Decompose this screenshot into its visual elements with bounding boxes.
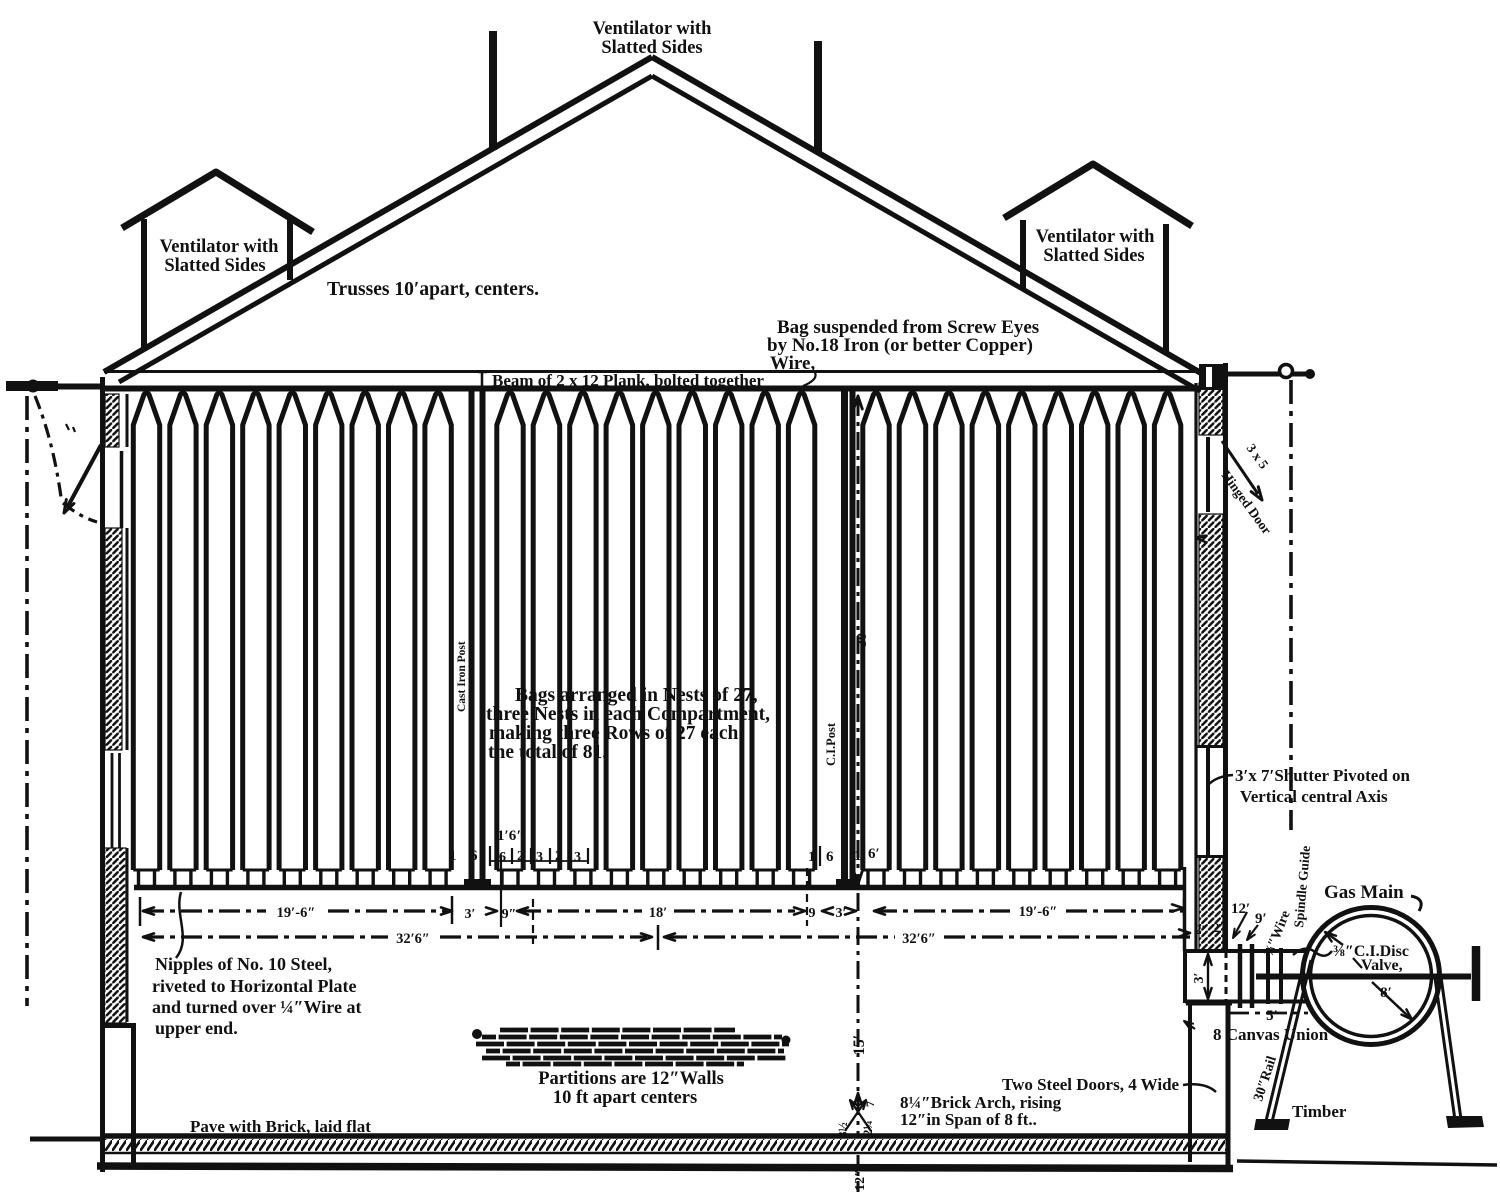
svg-text:Timber: Timber — [1292, 1102, 1347, 1121]
svg-text:Bags arranged in Nests of 27,: Bags arranged in Nests of 27, — [515, 685, 758, 706]
svg-text:32′6″: 32′6″ — [902, 931, 936, 947]
svg-text:Slatted Sides: Slatted Sides — [1043, 246, 1144, 266]
svg-text:Beam of 2 x 12 Plank, bolted t: Beam of 2 x 12 Plank, bolted together — [492, 371, 764, 390]
svg-text:Wire,: Wire, — [770, 353, 815, 374]
svg-text:three Nests in each Compartmen: three Nests in each Compartment, — [486, 704, 770, 725]
svg-text:1: 1 — [808, 849, 816, 865]
svg-text:and turned over ¼″Wire at: and turned over ¼″Wire at — [152, 997, 361, 1017]
svg-text:18′: 18′ — [649, 905, 668, 921]
svg-text:3: 3 — [536, 850, 543, 865]
svg-text:6: 6 — [826, 849, 834, 865]
svg-text:Two Steel Doors, 4 Wide: Two Steel Doors, 4 Wide — [1002, 1075, 1180, 1094]
svg-text:making three Rows of 27 each: making three Rows of 27 each — [489, 723, 738, 744]
svg-text:3′: 3′ — [465, 907, 476, 922]
svg-text:3: 3 — [574, 850, 581, 865]
svg-text:Nipples of No. 10 Steel,: Nipples of No. 10 Steel, — [155, 954, 332, 974]
svg-text:Slatted Sides: Slatted Sides — [601, 38, 702, 58]
svg-text:Ventilator with: Ventilator with — [593, 19, 712, 39]
svg-text:10 ft apart centers: 10 ft apart centers — [553, 1088, 697, 1108]
svg-text:19′-6″: 19′-6″ — [1019, 904, 1058, 920]
svg-text:9″: 9″ — [502, 907, 517, 922]
svg-text:riveted to Horizontal Plate: riveted to Horizontal Plate — [152, 976, 356, 996]
svg-text:1: 1 — [854, 848, 862, 864]
svg-text:1: 1 — [449, 848, 457, 864]
svg-text:1′6″: 1′6″ — [497, 828, 525, 844]
svg-text:the total of 81.: the total of 81. — [488, 742, 607, 763]
svg-text:3′: 3′ — [1192, 972, 1207, 983]
svg-text:32′6″: 32′6″ — [396, 931, 430, 947]
svg-text:12′: 12′ — [1231, 901, 1250, 917]
svg-text:Partitions are 12″Walls: Partitions are 12″Walls — [538, 1069, 724, 1089]
svg-text:7: 7 — [863, 1101, 877, 1107]
svg-text:Gas Main: Gas Main — [1324, 882, 1404, 903]
svg-text:2′: 2′ — [1195, 922, 1205, 937]
svg-text:19′-6″: 19′-6″ — [277, 905, 316, 921]
svg-text:30: 30 — [855, 633, 870, 647]
svg-text:Pave with Brick, laid flat: Pave with Brick, laid flat — [190, 1117, 371, 1136]
svg-text:Slatted Sides: Slatted Sides — [164, 256, 265, 276]
svg-text:2¼: 2¼ — [861, 1120, 875, 1136]
svg-text:12″: 12″ — [853, 1169, 868, 1191]
svg-text:Trusses 10′apart, centers.: Trusses 10′apart, centers. — [327, 279, 539, 300]
svg-text:6: 6 — [470, 848, 478, 864]
svg-text:8½: 8½ — [836, 1122, 850, 1138]
svg-text:9: 9 — [809, 906, 816, 921]
svg-text:Valve,: Valve, — [1361, 957, 1403, 974]
svg-text:6′: 6′ — [868, 846, 880, 862]
svg-text:3′x 7′Shutter Pivoted on: 3′x 7′Shutter Pivoted on — [1235, 766, 1411, 785]
svg-text:Vertical central Axis: Vertical central Axis — [1240, 787, 1388, 806]
svg-text:12″in Span of 8 ft..: 12″in Span of 8 ft.. — [900, 1110, 1037, 1129]
svg-text:upper end.: upper end. — [155, 1018, 238, 1038]
svg-text:9′: 9′ — [1255, 911, 1267, 927]
svg-text:Ventilator with: Ventilator with — [1036, 227, 1155, 247]
svg-text:2′: 2′ — [1213, 920, 1223, 935]
svg-text:C.I.Post: C.I.Post — [824, 722, 838, 766]
svg-text:15′: 15′ — [851, 1035, 868, 1056]
svg-text:Cast Iron Post: Cast Iron Post — [456, 641, 468, 712]
svg-text:Ventilator with: Ventilator with — [160, 237, 279, 257]
svg-text:5′: 5′ — [1266, 1008, 1278, 1024]
svg-text:8′: 8′ — [1380, 985, 1392, 1001]
